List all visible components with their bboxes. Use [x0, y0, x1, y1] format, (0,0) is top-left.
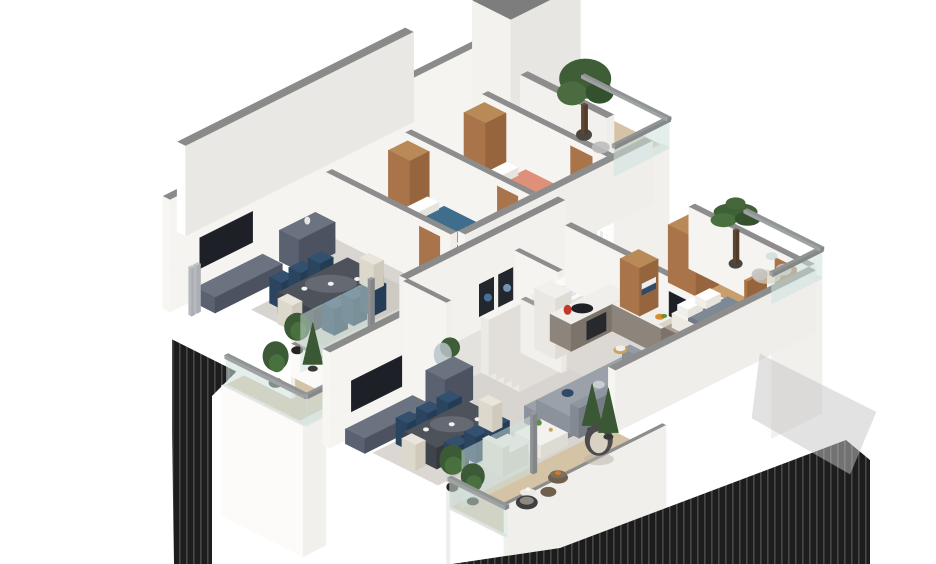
tree-trunk — [581, 105, 584, 135]
glass-door-frame — [533, 413, 537, 474]
topiary-pot — [308, 366, 318, 372]
palm-fronds — [726, 197, 746, 209]
pouf — [540, 487, 556, 497]
isometric-floorplan-svg — [0, 0, 936, 564]
tree-foliage — [557, 81, 587, 105]
dining-chair-head — [374, 260, 384, 290]
fruit — [661, 314, 667, 318]
floorplan-render — [0, 0, 936, 564]
wall-neighbor — [177, 142, 185, 236]
coffee-decor-gold — [549, 428, 553, 432]
shelf-towels — [620, 259, 639, 316]
wall-art-print — [484, 294, 492, 302]
staircase-landing — [481, 316, 489, 376]
plant-living-highlight — [445, 457, 463, 475]
wire-chair — [592, 141, 610, 153]
palm-trunk — [736, 230, 739, 264]
sofa-cushion — [593, 381, 605, 389]
wall-art-print — [503, 284, 511, 292]
wire-chair — [752, 268, 768, 280]
dining-chair-head — [416, 440, 426, 470]
glass-door-frame — [530, 414, 533, 474]
place-setting — [449, 422, 455, 426]
palm-fronds — [711, 213, 737, 227]
dining-chair-head — [493, 402, 503, 432]
topiary-pot — [603, 434, 613, 440]
decor-slat — [189, 267, 192, 316]
wall-back-living — [323, 349, 330, 448]
egg-chair-cushion — [590, 431, 608, 453]
tree-trunk — [585, 105, 588, 135]
cooktop — [571, 303, 593, 313]
decor-slat — [197, 264, 201, 313]
kettle — [564, 305, 572, 315]
teapot — [526, 487, 530, 491]
wicker-chair-cushion — [520, 497, 534, 505]
place-setting — [328, 282, 334, 286]
palm-trunk — [733, 230, 736, 264]
sofa-cushion — [562, 389, 574, 397]
pouf-tray — [555, 471, 561, 475]
wall-back — [163, 196, 170, 312]
place-setting — [301, 287, 307, 291]
sideboard-decor — [304, 217, 310, 225]
side-table-top — [615, 345, 625, 351]
slab-under-left — [303, 425, 307, 557]
glass-table — [766, 252, 778, 260]
plant-balcony-highlight — [269, 354, 285, 372]
decor-slat — [194, 264, 197, 313]
place-setting — [423, 427, 429, 431]
sofa-back — [571, 404, 580, 438]
